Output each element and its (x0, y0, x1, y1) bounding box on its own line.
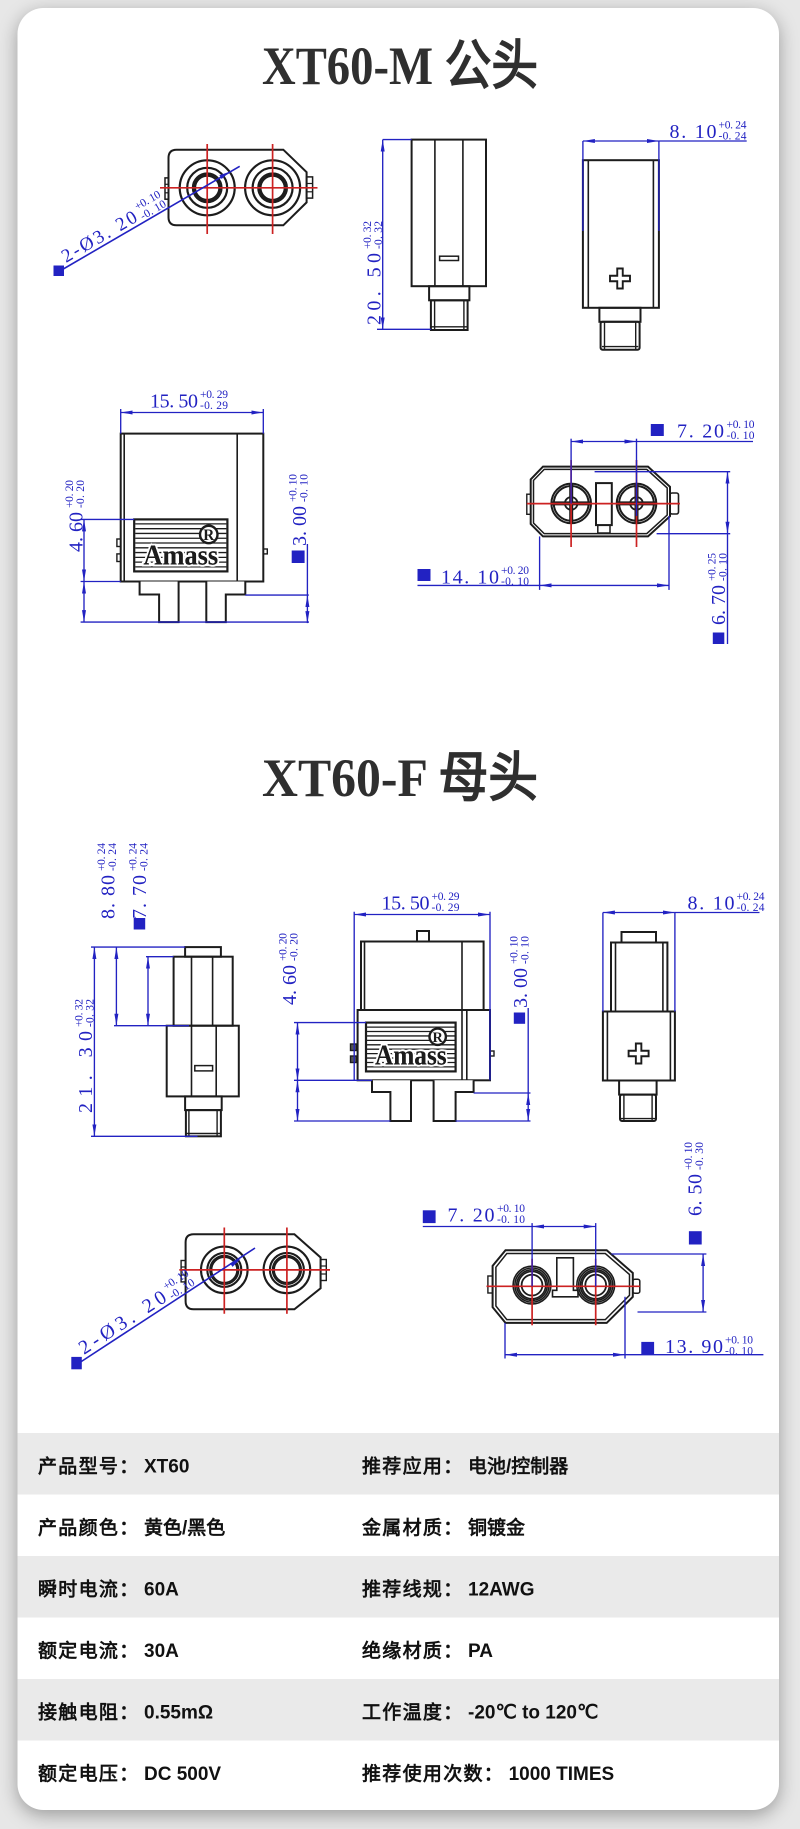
svg-text:4. 60: 4. 60 (66, 512, 88, 552)
svg-text:-0. 10: -0. 10 (299, 474, 311, 502)
svg-text:-0. 10: -0. 10 (725, 1345, 753, 1357)
svg-text:接触电阻：: 接触电阻： (38, 1700, 140, 1723)
svg-text:15. 50: 15. 50 (150, 391, 198, 413)
svg-text:1000 TIMES: 1000 TIMES (509, 1764, 615, 1785)
svg-text:额定电流：: 额定电流： (38, 1639, 140, 1662)
svg-text:绝缘材质：: 绝缘材质： (362, 1639, 464, 1662)
svg-text:3. 00: 3. 00 (289, 506, 311, 546)
svg-text:Amass: Amass (144, 539, 219, 571)
svg-text:XT60-M 公头: XT60-M 公头 (262, 36, 538, 96)
svg-text:-0. 10: -0. 10 (520, 936, 532, 964)
svg-text:DC 500V: DC 500V (144, 1764, 221, 1785)
svg-text:产品型号：: 产品型号： (38, 1454, 140, 1477)
svg-text:-0. 30: -0. 30 (694, 1142, 706, 1170)
svg-text:产品颜色：: 产品颜色： (38, 1516, 140, 1539)
svg-text:Amass: Amass (375, 1040, 447, 1071)
svg-text:工作温度：: 工作温度： (362, 1700, 464, 1723)
svg-text:推荐线规：: 推荐线规： (362, 1577, 464, 1600)
svg-text:-0. 24: -0. 24 (139, 843, 151, 871)
svg-text:-20℃ to 120℃: -20℃ to 120℃ (468, 1702, 598, 1723)
svg-text:瞬时电流：: 瞬时电流： (38, 1577, 140, 1600)
svg-text:-0. 24: -0. 24 (719, 131, 747, 143)
svg-text:-0. 32: -0. 32 (85, 999, 97, 1027)
svg-text:-0. 24: -0. 24 (737, 902, 765, 914)
svg-text:14. 10: 14. 10 (441, 567, 499, 589)
svg-text:0.55mΩ: 0.55mΩ (144, 1702, 213, 1723)
svg-text:-0. 20: -0. 20 (289, 933, 301, 961)
svg-text:13. 90: 13. 90 (665, 1336, 723, 1358)
svg-text:金属材质：: 金属材质： (361, 1516, 464, 1539)
svg-text:60A: 60A (144, 1579, 179, 1600)
svg-text:XT60: XT60 (144, 1456, 189, 1477)
svg-text:-0. 32: -0. 32 (373, 221, 385, 249)
svg-text:-0. 10: -0. 10 (497, 1214, 525, 1226)
svg-text:4. 60: 4. 60 (279, 965, 301, 1005)
svg-text:-0. 24: -0. 24 (107, 843, 119, 871)
svg-text:15. 50: 15. 50 (382, 893, 430, 915)
svg-text:6. 50: 6. 50 (685, 1174, 707, 1216)
svg-text:黄色/黑色: 黄色/黑色 (144, 1516, 225, 1539)
svg-text:PA: PA (468, 1641, 493, 1662)
svg-text:额定电压：: 额定电压： (38, 1762, 140, 1785)
svg-text:-0. 10: -0. 10 (718, 553, 730, 581)
svg-text:铜镀金: 铜镀金 (468, 1516, 526, 1539)
svg-text:-0. 10: -0. 10 (501, 576, 529, 588)
svg-text:12AWG: 12AWG (468, 1579, 535, 1600)
svg-text:-0. 20: -0. 20 (75, 480, 87, 508)
svg-text:XT60-F 母头: XT60-F 母头 (262, 748, 538, 808)
svg-text:推荐应用：: 推荐应用： (362, 1454, 464, 1477)
svg-text:30A: 30A (144, 1641, 179, 1662)
svg-text:3. 00: 3. 00 (510, 968, 532, 1008)
svg-text:6. 70: 6. 70 (708, 585, 730, 625)
svg-text:推荐使用次数：: 推荐使用次数： (362, 1762, 504, 1785)
svg-text:-0. 29: -0. 29 (200, 400, 228, 412)
svg-text:-0. 10: -0. 10 (727, 430, 755, 442)
svg-text:-0. 29: -0. 29 (432, 902, 460, 914)
svg-text:电池/控制器: 电池/控制器 (468, 1454, 569, 1477)
